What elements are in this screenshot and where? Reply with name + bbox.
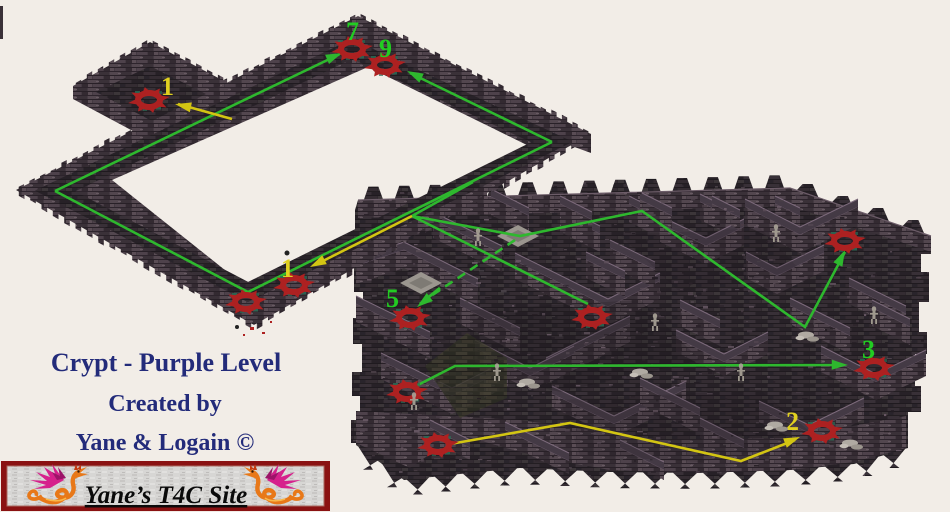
svg-text:7: 7 xyxy=(346,17,359,46)
svg-text:Yane’s T4C Site: Yane’s T4C Site xyxy=(85,482,248,509)
svg-text:3: 3 xyxy=(862,335,875,364)
svg-text:Yane & Logain ©: Yane & Logain © xyxy=(76,430,255,456)
svg-text:5: 5 xyxy=(386,284,399,313)
svg-text:1: 1 xyxy=(161,72,174,101)
svg-text:9: 9 xyxy=(379,34,392,63)
svg-text:Created by: Created by xyxy=(108,391,222,417)
svg-text:1: 1 xyxy=(281,254,294,283)
svg-text:2: 2 xyxy=(786,407,799,436)
svg-text:Crypt - Purple Level: Crypt - Purple Level xyxy=(51,348,281,377)
